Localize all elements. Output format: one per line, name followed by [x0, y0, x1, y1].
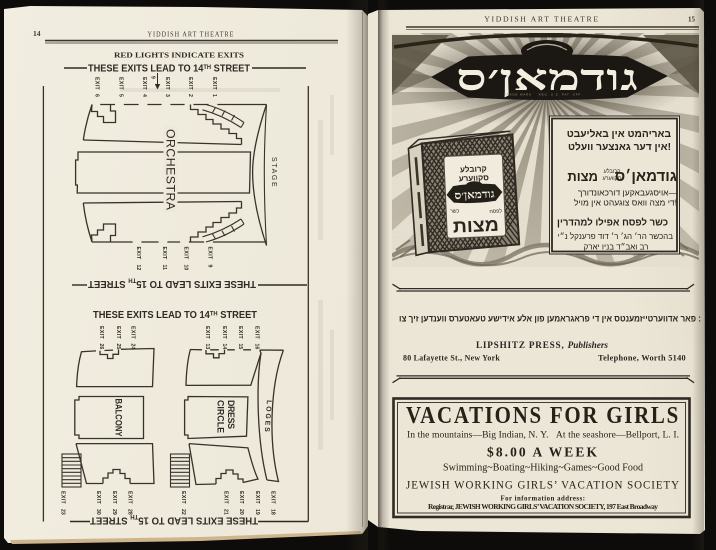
- svg-text:30: 30: [95, 509, 101, 515]
- svg-text:80 Lafayette St., New York: 80 Lafayette St., New York: [403, 354, 500, 363]
- svg-text:EXIT: EXIT: [270, 491, 276, 505]
- svg-text:21: 21: [223, 509, 229, 515]
- svg-text:EXIT: EXIT: [183, 247, 189, 261]
- svg-text:CIRCLE: CIRCLE: [216, 400, 226, 433]
- svg-text:9: 9: [207, 265, 213, 268]
- svg-text:19: 19: [254, 509, 260, 515]
- svg-text:THESE EXITS LEAD TO 14TH STRE: THESE EXITS LEAD TO 14TH STREET: [88, 64, 251, 75]
- svg-text:In the mountains—Big Indian, N: In the mountains—Big Indian, N. Y. At th…: [407, 430, 679, 441]
- svg-text:THESE EXITS LEAD TO 15TH STREE: THESE EXITS LEAD TO 15TH STREET: [89, 513, 258, 526]
- svg-text:23: 23: [60, 509, 66, 515]
- svg-text:Telephone, Worth 5140: Telephone, Worth 5140: [598, 354, 686, 363]
- svg-text:9: 9: [150, 76, 156, 79]
- svg-text:YIDDISH ART THEATRE: YIDDISH ART THEATRE: [148, 31, 235, 39]
- svg-text:EXIT: EXIT: [254, 326, 260, 340]
- svg-text:גודמאן׳ס: גודמאן׳ס: [615, 168, 677, 185]
- svg-text:20: 20: [238, 509, 244, 515]
- svg-text:STAGE: STAGE: [270, 157, 277, 188]
- svg-text:רב ואב״ד בניו יארק: רב ואב״ד בניו יארק: [584, 243, 649, 252]
- svg-text:14: 14: [221, 344, 227, 350]
- svg-text:THESE EXITS LEAD TO 14TH STREE: THESE EXITS LEAD TO 14TH STREET: [93, 310, 258, 321]
- svg-text:26: 26: [98, 344, 104, 350]
- svg-text:קרובלע: קרובלע: [604, 168, 621, 175]
- svg-text:1: 1: [211, 94, 217, 97]
- svg-text:RED LIGHTS INDICATE EXITS: RED LIGHTS INDICATE EXITS: [114, 51, 244, 60]
- svg-text:אויסגעבאקען דורכאונדורך—: אויסגעבאקען דורכאונדורך—: [578, 188, 678, 198]
- svg-text:14: 14: [33, 29, 41, 38]
- svg-text:4: 4: [141, 94, 147, 97]
- svg-text:EXIT: EXIT: [60, 491, 66, 505]
- svg-text:LOGES: LOGES: [263, 400, 272, 434]
- svg-text:$8.00 A WEEK: $8.00 A WEEK: [487, 445, 599, 460]
- svg-text:EXIT: EXIT: [204, 326, 210, 340]
- svg-text:EXIT: EXIT: [98, 326, 104, 340]
- svg-text:EXIT: EXIT: [130, 326, 136, 340]
- svg-text:YIDDISH ART THEATRE: YIDDISH ART THEATRE: [484, 15, 599, 24]
- svg-text:VACATIONS FOR GIRLS: VACATIONS FOR GIRLS: [406, 403, 680, 429]
- svg-text:5: 5: [118, 94, 124, 97]
- svg-text:EXIT: EXIT: [207, 247, 213, 261]
- svg-text:גודמאן׳ס: גודמאן׳ס: [454, 188, 495, 202]
- svg-text:EXIT: EXIT: [115, 326, 121, 340]
- svg-text:כשר: כשר: [450, 208, 460, 214]
- svg-text:BALCONY: BALCONY: [114, 399, 124, 438]
- svg-text:EXIT: EXIT: [135, 247, 141, 261]
- svg-text:3: 3: [164, 94, 170, 97]
- svg-text:DRESS: DRESS: [226, 400, 236, 429]
- svg-text:EXIT: EXIT: [95, 491, 101, 505]
- svg-text:מצות: מצות: [567, 169, 598, 184]
- svg-text:EXIT: EXIT: [221, 326, 227, 340]
- svg-text:2: 2: [187, 94, 193, 97]
- svg-text:10: 10: [183, 265, 189, 271]
- svg-text:TRADE MARK REG. U.S. PAT. O: TRADE MARK REG. U.S. PAT. OFF.: [504, 93, 582, 97]
- svg-text:22: 22: [180, 509, 186, 515]
- svg-text:פאר אדווערטייזמענטס אין די פרא: פאר אדווערטייזמענטס אין די פראגראמען פון…: [399, 314, 701, 324]
- svg-text:6: 6: [94, 94, 100, 97]
- svg-text:25: 25: [115, 344, 121, 350]
- svg-text:EXIT: EXIT: [111, 491, 117, 505]
- svg-text:18: 18: [270, 509, 276, 515]
- svg-text:EXIT: EXIT: [238, 491, 244, 505]
- svg-text:15: 15: [237, 344, 243, 350]
- svg-text:EXIT: EXIT: [254, 491, 260, 505]
- svg-text:EXIT: EXIT: [161, 247, 167, 261]
- svg-text:באריהמט אין באליעבט: באריהמט אין באליעבט: [567, 128, 672, 140]
- svg-text:די מצה וואס צוגעהט אין מויל!: די מצה וואס צוגעהט אין מויל!: [574, 198, 677, 208]
- svg-text:EXIT: EXIT: [223, 491, 229, 505]
- svg-text:EXIT: EXIT: [94, 77, 100, 91]
- svg-text:בהכשר הר׳ הג׳ ר׳ דוד פרענקל נ״: בהכשר הר׳ הג׳ ר׳ דוד פרענקל נ״י: [558, 232, 674, 241]
- svg-text:EXIT: EXIT: [180, 491, 186, 505]
- svg-text:EXIT: EXIT: [127, 491, 133, 505]
- svg-text:מצות: מצות: [452, 215, 499, 237]
- svg-text:Registrar, JEWISH WORKING GIRL: Registrar, JEWISH WORKING GIRLS’ VACATIO…: [428, 502, 658, 511]
- svg-text:כשר לפסח אפילו למהדרין: כשר לפסח אפילו למהדרין: [557, 218, 668, 229]
- svg-text:11: 11: [161, 265, 167, 271]
- svg-text:29: 29: [111, 509, 117, 515]
- svg-text:סקווערע: סקווערע: [602, 176, 621, 182]
- svg-text:אין דער גאנצער וועלט!: אין דער גאנצער וועלט!: [568, 141, 671, 153]
- svg-text:13: 13: [204, 344, 210, 350]
- svg-text:EXIT: EXIT: [237, 326, 243, 340]
- svg-text:12: 12: [135, 265, 141, 271]
- svg-text:Swimming~Boating~Hiking~Games~: Swimming~Boating~Hiking~Games~Good Food: [443, 463, 643, 474]
- svg-text:LIPSHITZ PRESS, Publishers: LIPSHITZ PRESS, Publishers: [476, 340, 608, 350]
- svg-text:ORCHESTRA: ORCHESTRA: [164, 129, 178, 211]
- svg-text:JEWISH WORKING GIRLS’ VACATION: JEWISH WORKING GIRLS’ VACATION SOCIETY: [406, 480, 680, 492]
- svg-text:THESE EXITS LEAD TO 15TH STREE: THESE EXITS LEAD TO 15TH STREET: [87, 277, 256, 290]
- svg-text:16: 16: [254, 344, 260, 350]
